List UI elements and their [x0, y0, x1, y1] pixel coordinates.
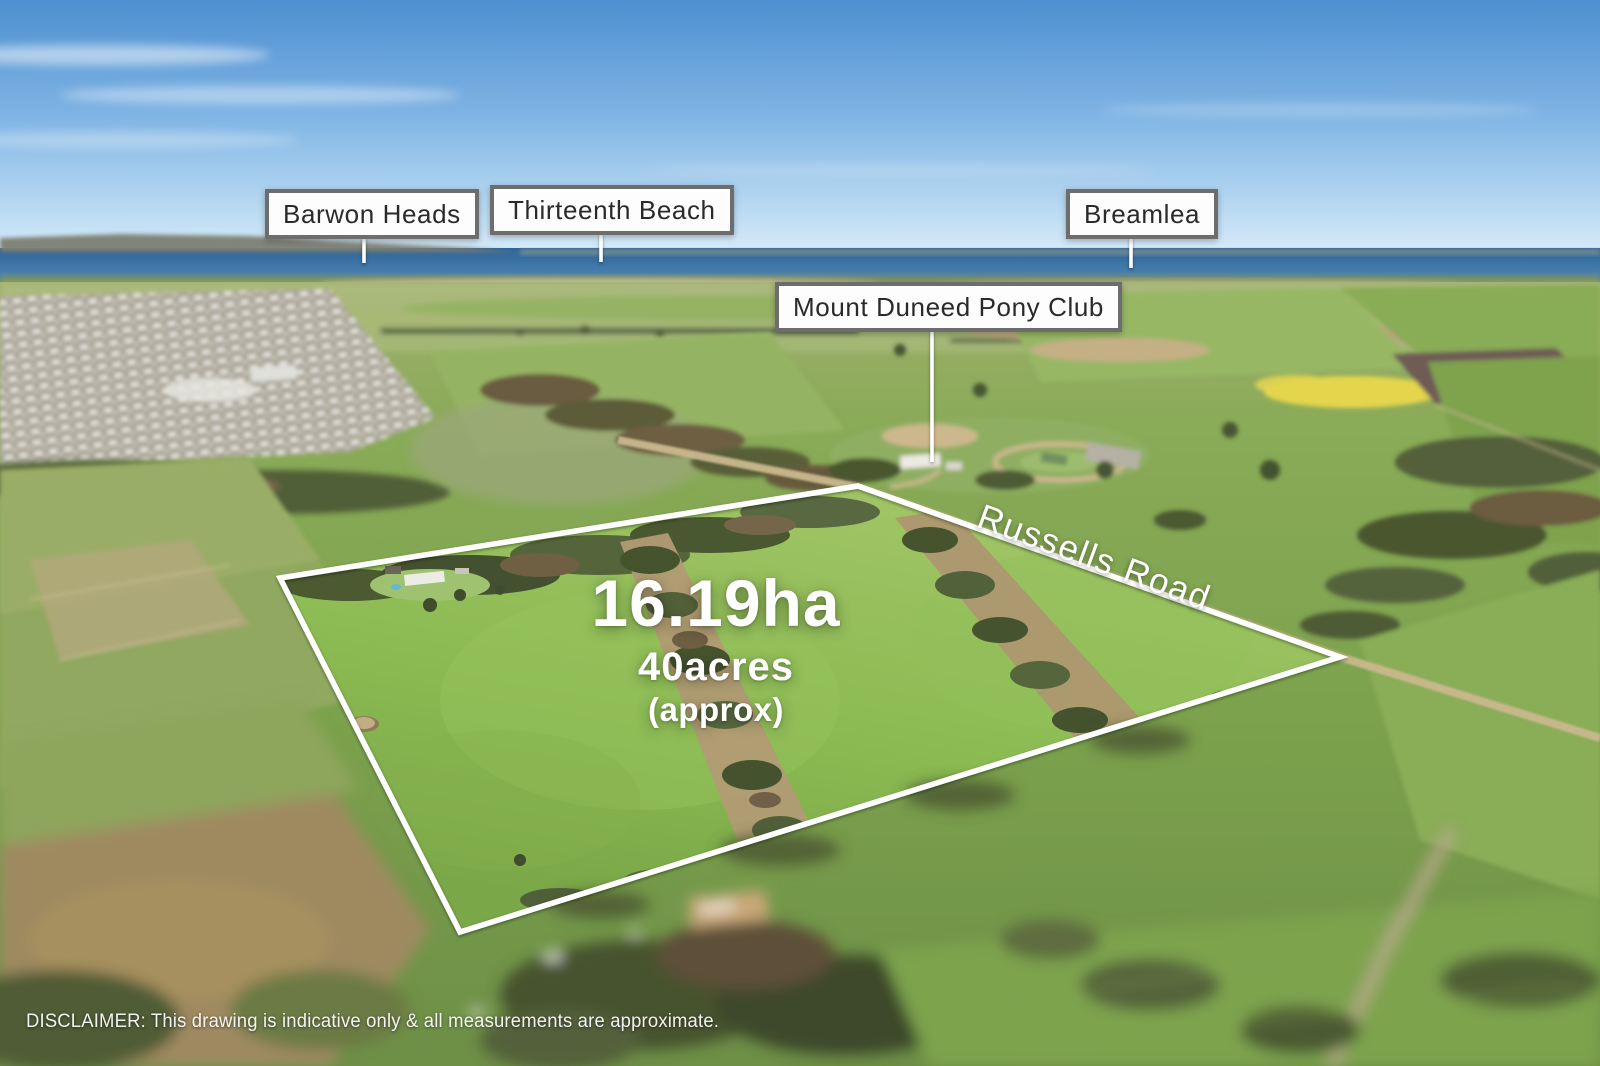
- aerial-listing-image: Barwon Heads Thirteenth Beach Breamlea M…: [0, 0, 1600, 1066]
- aerial-photo-background: [0, 0, 1600, 1066]
- sky: [0, 0, 1600, 256]
- area-approx-qualifier: (approx): [591, 693, 840, 726]
- pony-club-grounds: [829, 417, 1150, 493]
- location-label-text: Breamlea: [1084, 199, 1200, 229]
- location-label-text: Thirteenth Beach: [508, 195, 716, 225]
- disclaimer-text: DISCLAIMER: This drawing is indicative o…: [26, 1011, 719, 1033]
- location-label-barwon-heads: Barwon Heads: [265, 189, 479, 239]
- location-label-text: Mount Duneed Pony Club: [793, 292, 1104, 322]
- location-label-pony-club: Mount Duneed Pony Club: [775, 282, 1122, 332]
- location-label-breamlea: Breamlea: [1066, 189, 1218, 239]
- location-label-thirteenth-beach: Thirteenth Beach: [490, 185, 734, 235]
- property-area-text: 16.19ha 40acres (approx): [591, 570, 840, 726]
- location-label-text: Barwon Heads: [283, 199, 461, 229]
- area-hectares: 16.19ha: [591, 570, 840, 636]
- area-acres: 40acres: [591, 647, 840, 687]
